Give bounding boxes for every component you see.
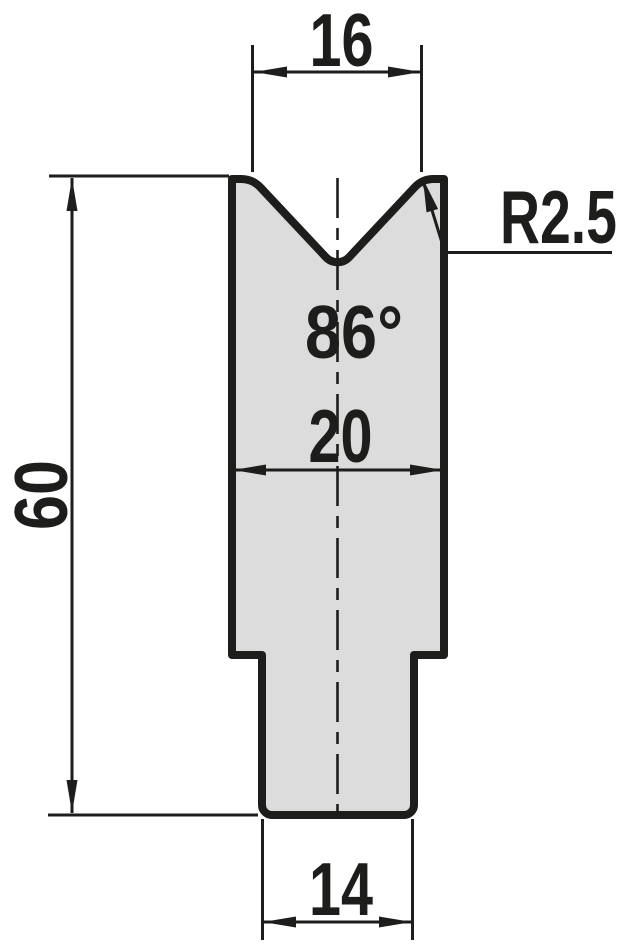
arrowhead-60-bottom: [67, 780, 78, 813]
dim-label-tang-width: 14: [309, 847, 373, 931]
arrowhead-60-top: [67, 178, 78, 211]
dim-label-shoulder-radius: R2.5: [500, 175, 617, 259]
dim-label-groove-opening: 16: [310, 0, 374, 82]
dim-label-body-width: 20: [309, 394, 373, 478]
dim-label-total-height: 60: [0, 460, 83, 530]
arrowhead-14-right: [379, 917, 412, 928]
dim-label-groove-angle: 86°: [305, 290, 403, 374]
arrowhead-16-right: [388, 67, 421, 78]
arrowhead-16-left: [254, 67, 287, 78]
arrowhead-14-left: [263, 917, 296, 928]
technical-drawing-canvas: 16 86° 20 60 14 R2.5: [0, 0, 625, 945]
